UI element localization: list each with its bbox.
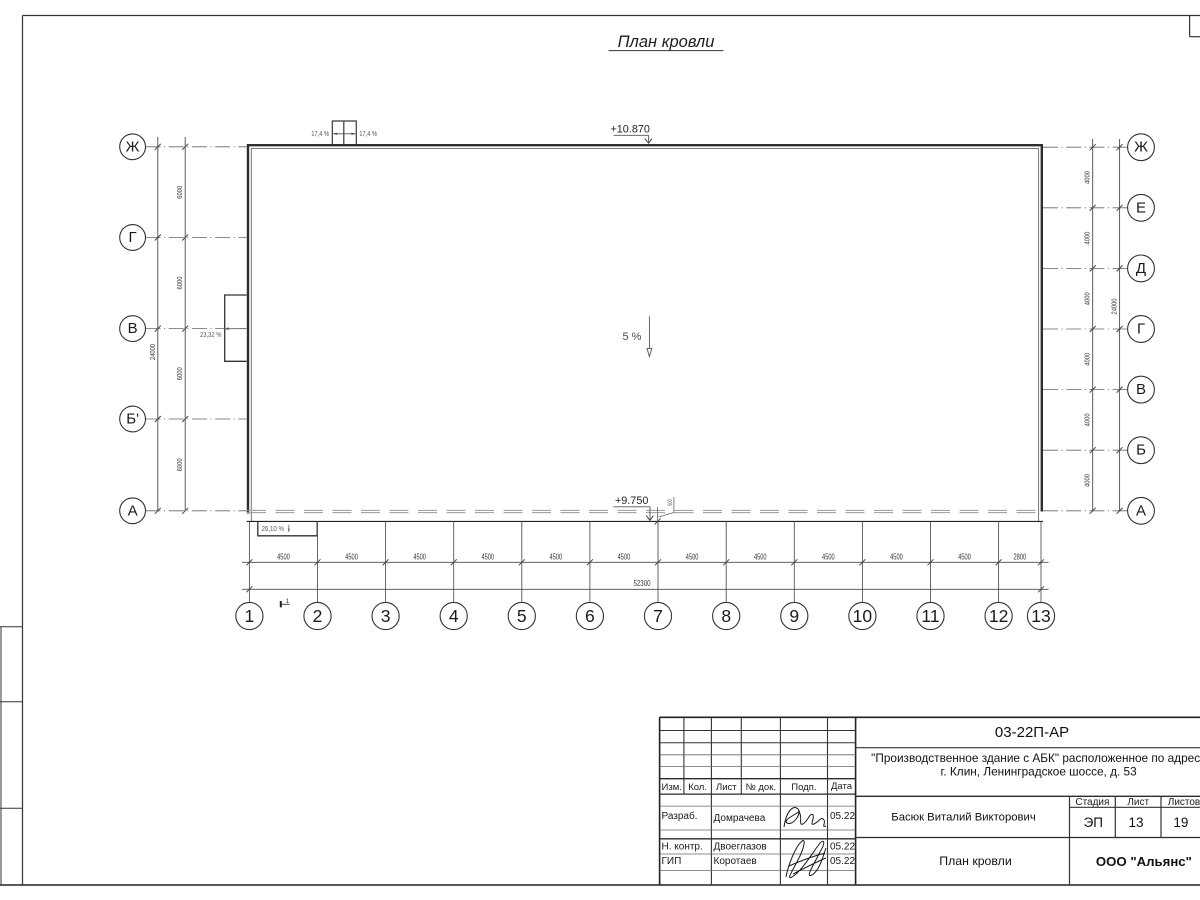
svg-text:4500: 4500 — [822, 552, 835, 561]
svg-text:6: 6 — [585, 606, 595, 626]
svg-text:А: А — [128, 502, 138, 519]
svg-text:2: 2 — [313, 606, 323, 626]
svg-text:Ж: Ж — [1134, 139, 1148, 156]
svg-text:Листов: Листов — [1168, 797, 1200, 808]
svg-text:Д: Д — [1136, 260, 1146, 277]
svg-text:11: 11 — [921, 606, 939, 626]
svg-text:24000: 24000 — [148, 344, 157, 360]
svg-text:Б: Б — [1136, 442, 1146, 459]
svg-text:План кровли: План кровли — [618, 33, 715, 51]
svg-text:Двоеглазов: Двоеглазов — [714, 842, 767, 853]
svg-text:4: 4 — [449, 606, 459, 626]
svg-text:Н. контр.: Н. контр. — [662, 842, 703, 853]
svg-text:4500: 4500 — [277, 552, 290, 561]
svg-text:9: 9 — [789, 606, 799, 626]
svg-text:Изм.: Изм. — [662, 782, 682, 793]
svg-text:Разраб.: Разраб. — [662, 810, 698, 822]
svg-text:"Производственное здание с АБК: "Производственное здание с АБК" располож… — [871, 751, 1200, 765]
svg-text:03-22П-АР: 03-22П-АР — [995, 724, 1069, 741]
svg-text:г. Клин, Ленинградское шоссе,: г. Клин, Ленинградское шоссе, д. 53 — [941, 765, 1138, 779]
svg-text:4000: 4000 — [1082, 292, 1091, 305]
svg-text:Г: Г — [129, 229, 137, 246]
svg-text:05.22: 05.22 — [830, 842, 855, 853]
svg-text:4000: 4000 — [1082, 232, 1091, 245]
svg-text:600: 600 — [667, 499, 674, 506]
svg-text:Коротаев: Коротаев — [714, 856, 757, 867]
svg-text:1: 1 — [245, 606, 255, 626]
svg-text:Лист: Лист — [1127, 797, 1149, 808]
svg-text:Б': Б' — [126, 411, 139, 428]
svg-text:Домрачева: Домрачева — [714, 813, 766, 824]
svg-text:6000: 6000 — [175, 277, 184, 290]
svg-text:4500: 4500 — [754, 552, 767, 561]
svg-text:Дата: Дата — [831, 781, 853, 792]
svg-text:1: 1 — [286, 598, 290, 605]
svg-text:17,4 %: 17,4 % — [359, 129, 377, 138]
svg-text:4500: 4500 — [958, 552, 971, 561]
svg-text:4500: 4500 — [686, 552, 699, 561]
svg-text:05.22: 05.22 — [830, 856, 855, 867]
svg-text:5 %: 5 % — [623, 331, 642, 343]
svg-text:Е: Е — [1136, 199, 1146, 216]
svg-text:6000: 6000 — [175, 458, 184, 471]
svg-text:10: 10 — [853, 606, 873, 626]
svg-text:Подп.: Подп. — [791, 782, 816, 793]
svg-text:Басюк Виталий Викторович: Басюк Виталий Викторович — [891, 811, 1036, 823]
svg-text:Стадия: Стадия — [1075, 797, 1109, 808]
svg-text:В: В — [128, 320, 138, 337]
svg-text:ЭП: ЭП — [1084, 815, 1103, 830]
svg-text:4000: 4000 — [1082, 171, 1091, 184]
svg-text:19: 19 — [1173, 815, 1188, 830]
svg-text:4500: 4500 — [481, 552, 494, 561]
svg-text:4500: 4500 — [890, 552, 903, 561]
svg-text:№ док.: № док. — [746, 782, 776, 793]
svg-text:+9.750: +9.750 — [615, 495, 648, 507]
svg-text:05.22: 05.22 — [830, 811, 855, 822]
svg-text:6000: 6000 — [175, 186, 184, 199]
svg-text:ГИП: ГИП — [662, 856, 682, 867]
svg-text:Ж: Ж — [126, 138, 140, 155]
svg-text:7: 7 — [653, 606, 663, 626]
svg-text:8: 8 — [721, 606, 731, 626]
svg-text:+10.870: +10.870 — [611, 124, 650, 136]
svg-text:13: 13 — [1031, 606, 1050, 626]
svg-text:52300: 52300 — [634, 579, 652, 588]
svg-text:ООО "Альянс": ООО "Альянс" — [1096, 854, 1192, 869]
svg-text:4500: 4500 — [345, 552, 358, 561]
svg-text:Кол.: Кол. — [688, 782, 707, 793]
svg-text:13: 13 — [1128, 815, 1143, 830]
svg-text:А: А — [1136, 502, 1146, 519]
svg-text:4000: 4000 — [1082, 413, 1091, 426]
svg-text:В: В — [1136, 381, 1146, 398]
svg-text:6000: 6000 — [175, 367, 184, 380]
svg-text:4500: 4500 — [618, 552, 631, 561]
svg-text:Г: Г — [1137, 321, 1145, 338]
svg-text:26,10 %: 26,10 % — [262, 526, 285, 533]
svg-text:4500: 4500 — [550, 552, 563, 561]
svg-text:5: 5 — [517, 606, 527, 626]
svg-text:4500: 4500 — [413, 552, 426, 561]
svg-text:2800: 2800 — [1014, 552, 1027, 561]
svg-text:4000: 4000 — [1082, 474, 1091, 487]
svg-text:План кровли: План кровли — [939, 854, 1012, 868]
svg-text:Лист: Лист — [716, 782, 737, 793]
svg-text:24000: 24000 — [1110, 299, 1119, 315]
svg-text:3: 3 — [381, 606, 391, 626]
svg-text:12: 12 — [989, 606, 1008, 626]
svg-text:17,4 %: 17,4 % — [311, 129, 329, 138]
svg-text:4000: 4000 — [1082, 353, 1091, 366]
svg-text:23,32 %: 23,32 % — [200, 332, 222, 339]
